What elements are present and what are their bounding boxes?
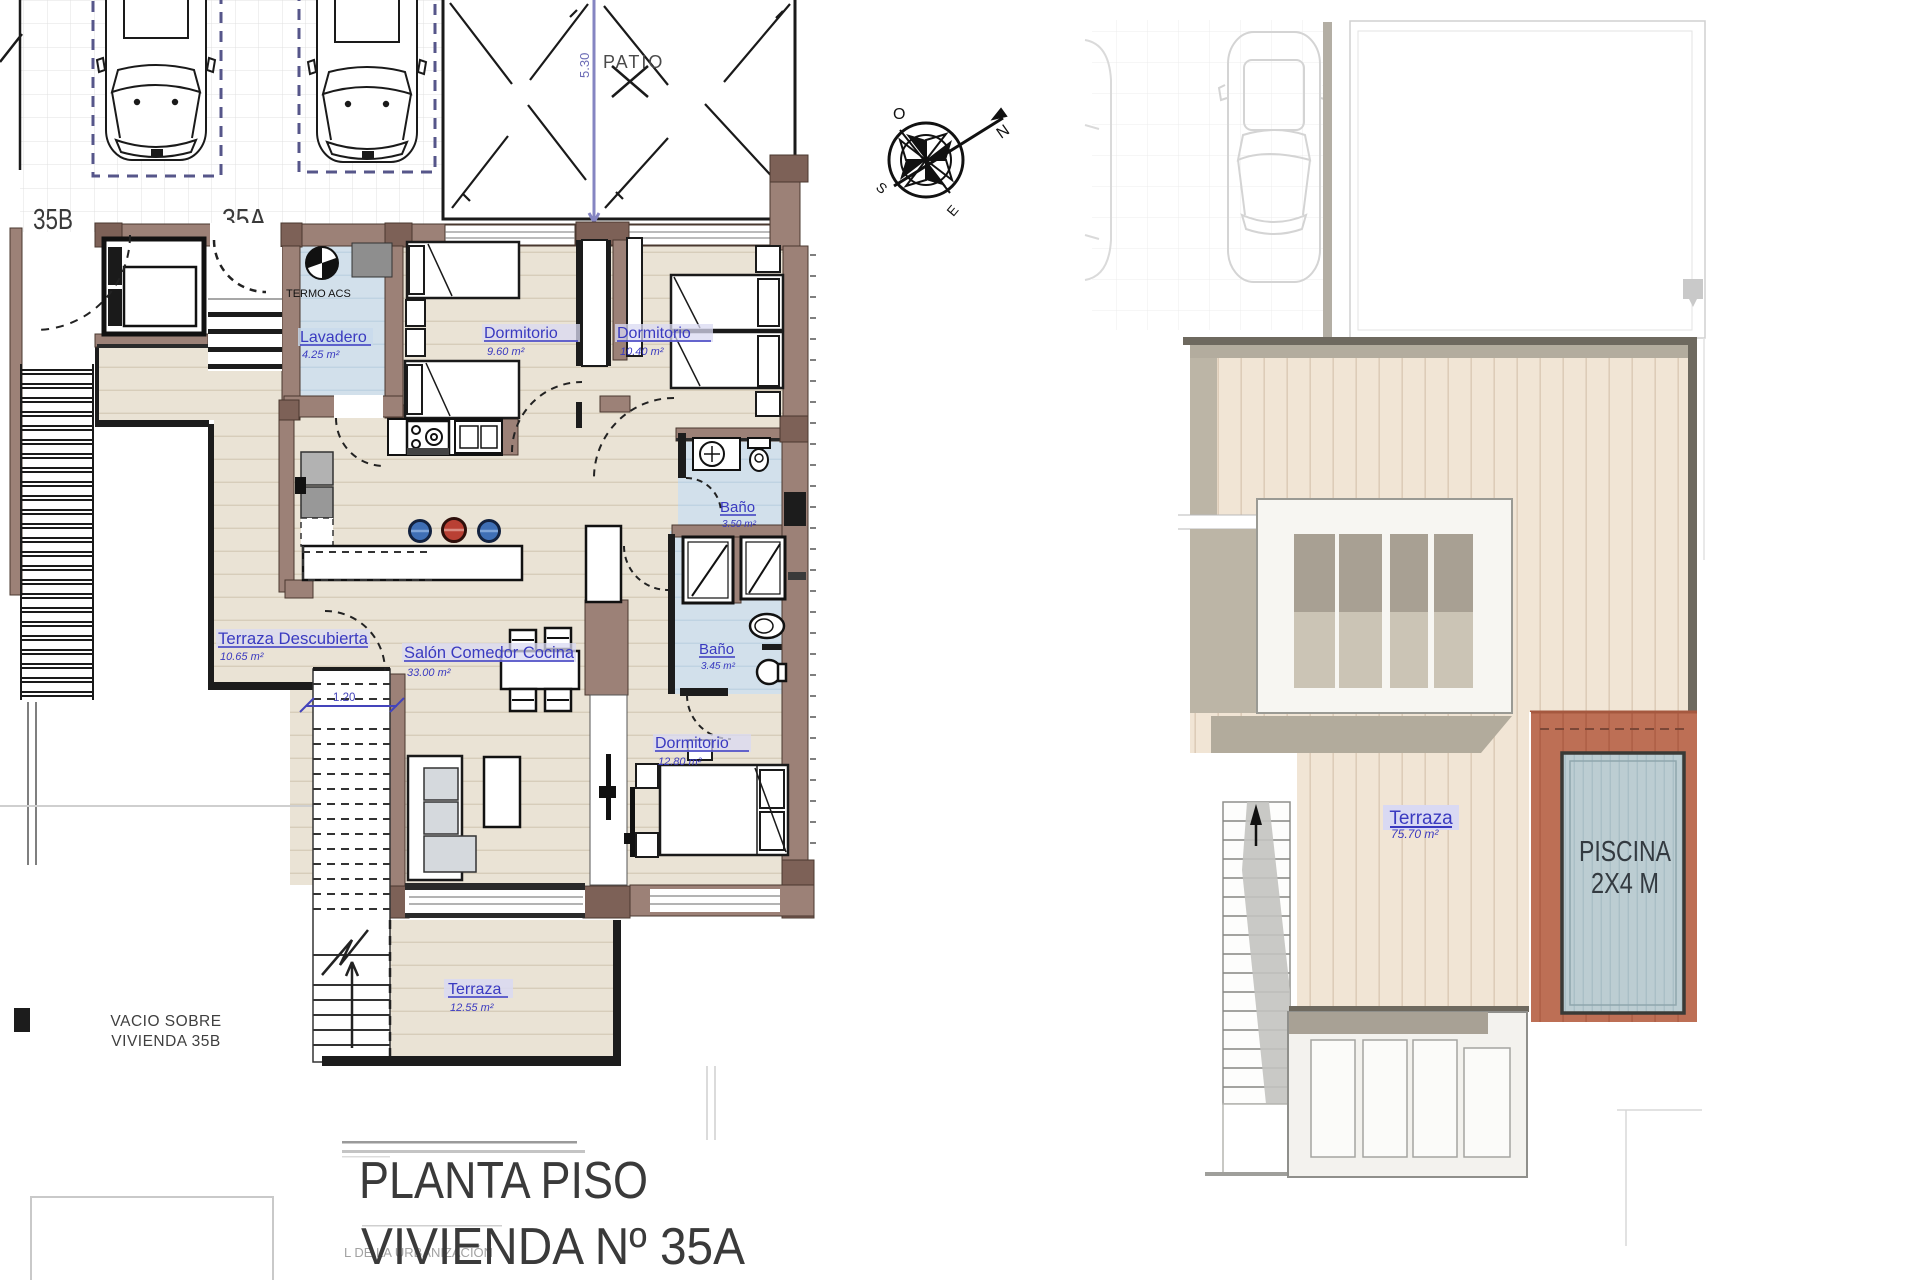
svg-text:3.45 m²: 3.45 m² <box>701 661 736 672</box>
svg-text:1.20: 1.20 <box>333 692 355 704</box>
svg-text:PATIO: PATIO <box>603 52 664 72</box>
svg-text:4.25 m²: 4.25 m² <box>302 349 340 361</box>
svg-text:12.55 m²: 12.55 m² <box>450 1002 494 1014</box>
svg-text:O: O <box>893 106 905 123</box>
svg-text:75.70 m²: 75.70 m² <box>1391 827 1439 841</box>
svg-text:3.50 m²: 3.50 m² <box>722 519 757 530</box>
svg-text:10.40 m²: 10.40 m² <box>620 346 664 358</box>
svg-text:PLANTA PISO: PLANTA PISO <box>359 1152 648 1210</box>
svg-text:Salón Comedor Cocina: Salón Comedor Cocina <box>404 643 575 662</box>
svg-text:VACIO SOBRE: VACIO SOBRE <box>110 1013 221 1030</box>
svg-text:33.00 m²: 33.00 m² <box>407 667 451 679</box>
svg-text:35B: 35B <box>33 204 73 236</box>
svg-text:2X4 M: 2X4 M <box>1591 868 1659 900</box>
svg-text:9.60 m²: 9.60 m² <box>487 346 525 358</box>
svg-text:Lavadero: Lavadero <box>300 329 367 346</box>
svg-text:TERMO ACS: TERMO ACS <box>286 288 351 300</box>
svg-text:PISCINA: PISCINA <box>1579 836 1672 868</box>
svg-text:Dormitorio: Dormitorio <box>484 325 558 342</box>
svg-text:Baño: Baño <box>699 641 734 658</box>
svg-text:VIVIENDA Nº 35A: VIVIENDA Nº 35A <box>361 1218 745 1276</box>
svg-text:5.30: 5.30 <box>577 53 592 78</box>
svg-text:VIVIENDA 35B: VIVIENDA 35B <box>111 1033 220 1050</box>
svg-text:Dormitorio: Dormitorio <box>617 325 691 342</box>
svg-text:Terraza: Terraza <box>448 981 501 998</box>
svg-text:Baño: Baño <box>720 499 755 516</box>
svg-text:12.80 m²: 12.80 m² <box>658 756 702 768</box>
svg-text:10.65 m²: 10.65 m² <box>220 651 264 663</box>
svg-text:Terraza: Terraza <box>1389 808 1453 829</box>
svg-text:Dormitorio: Dormitorio <box>655 735 729 752</box>
svg-text:Terraza Descubierta: Terraza Descubierta <box>218 629 369 648</box>
